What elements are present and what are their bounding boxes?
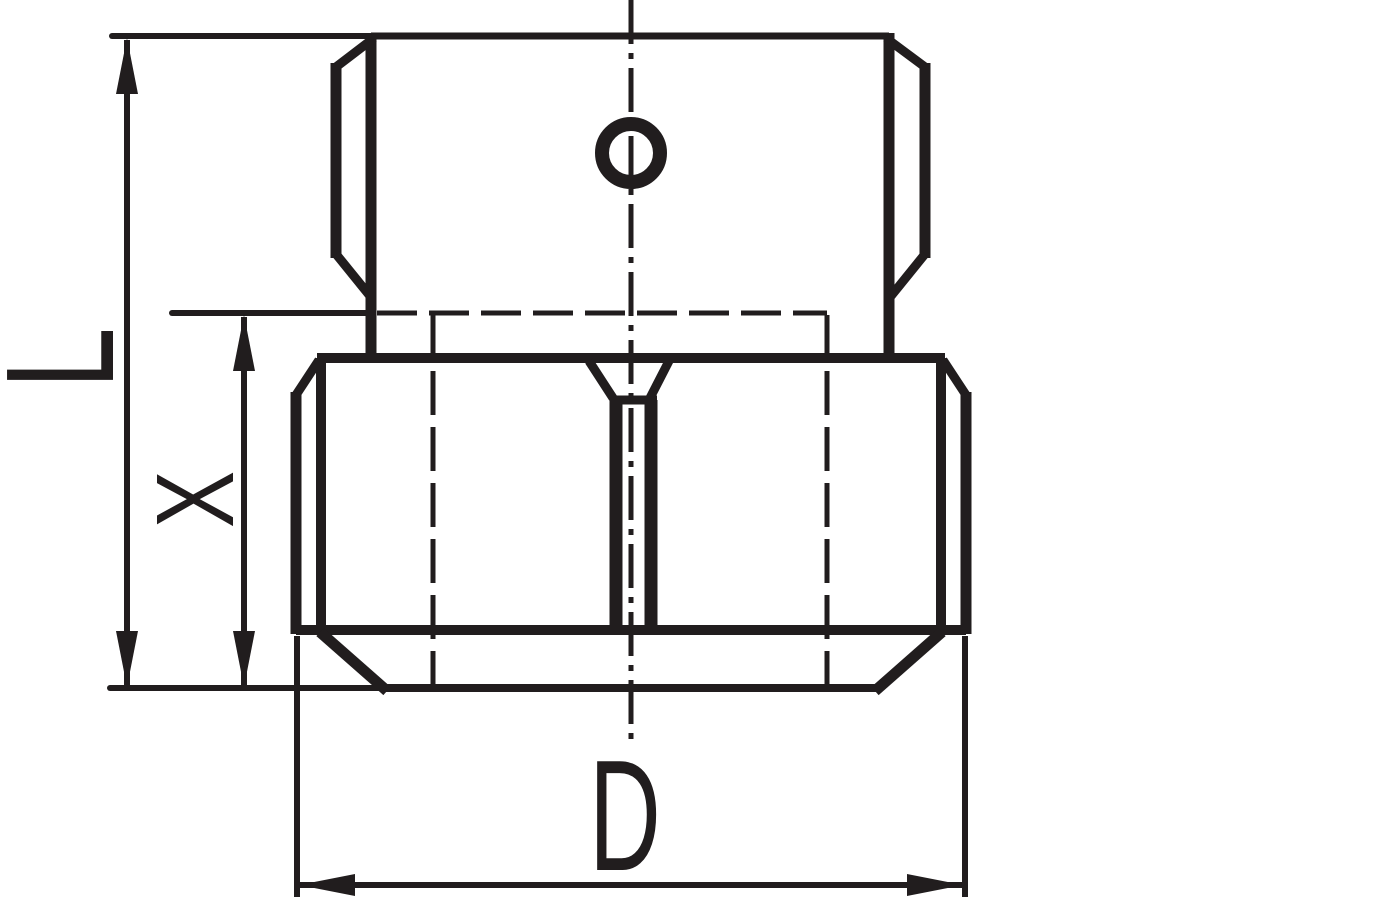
dimension-X-label: X xyxy=(134,471,257,528)
lower-body-left-bottom-chamfer xyxy=(320,632,387,691)
dimension-L-arrow-up xyxy=(116,38,138,94)
fitting-side-view-drawing: L X D xyxy=(0,0,1400,900)
dimension-L-arrow-down xyxy=(116,631,138,687)
upper-body-left-bottom-chamfer xyxy=(336,254,370,296)
dimension-D: D xyxy=(297,636,965,900)
lower-body-right-bottom-chamfer xyxy=(875,632,942,691)
dimension-D-arrow-left xyxy=(299,874,355,896)
upper-body-right-bottom-chamfer xyxy=(891,254,925,296)
lower-body-right-top-chamfer xyxy=(943,360,966,395)
dimension-X-arrow-up xyxy=(233,315,255,371)
dimension-D-arrow-right xyxy=(907,874,963,896)
dimension-X-arrow-down xyxy=(233,631,255,687)
dimension-L-label: L xyxy=(0,327,146,389)
dimension-D-label: D xyxy=(589,726,661,900)
bore-left-flare-chamfer xyxy=(589,361,613,398)
bore-right-flare-chamfer xyxy=(650,361,669,398)
dimension-L: L xyxy=(0,38,146,687)
technical-drawing-canvas: L X D xyxy=(0,0,1400,900)
lower-body-left-top-chamfer xyxy=(296,360,319,395)
